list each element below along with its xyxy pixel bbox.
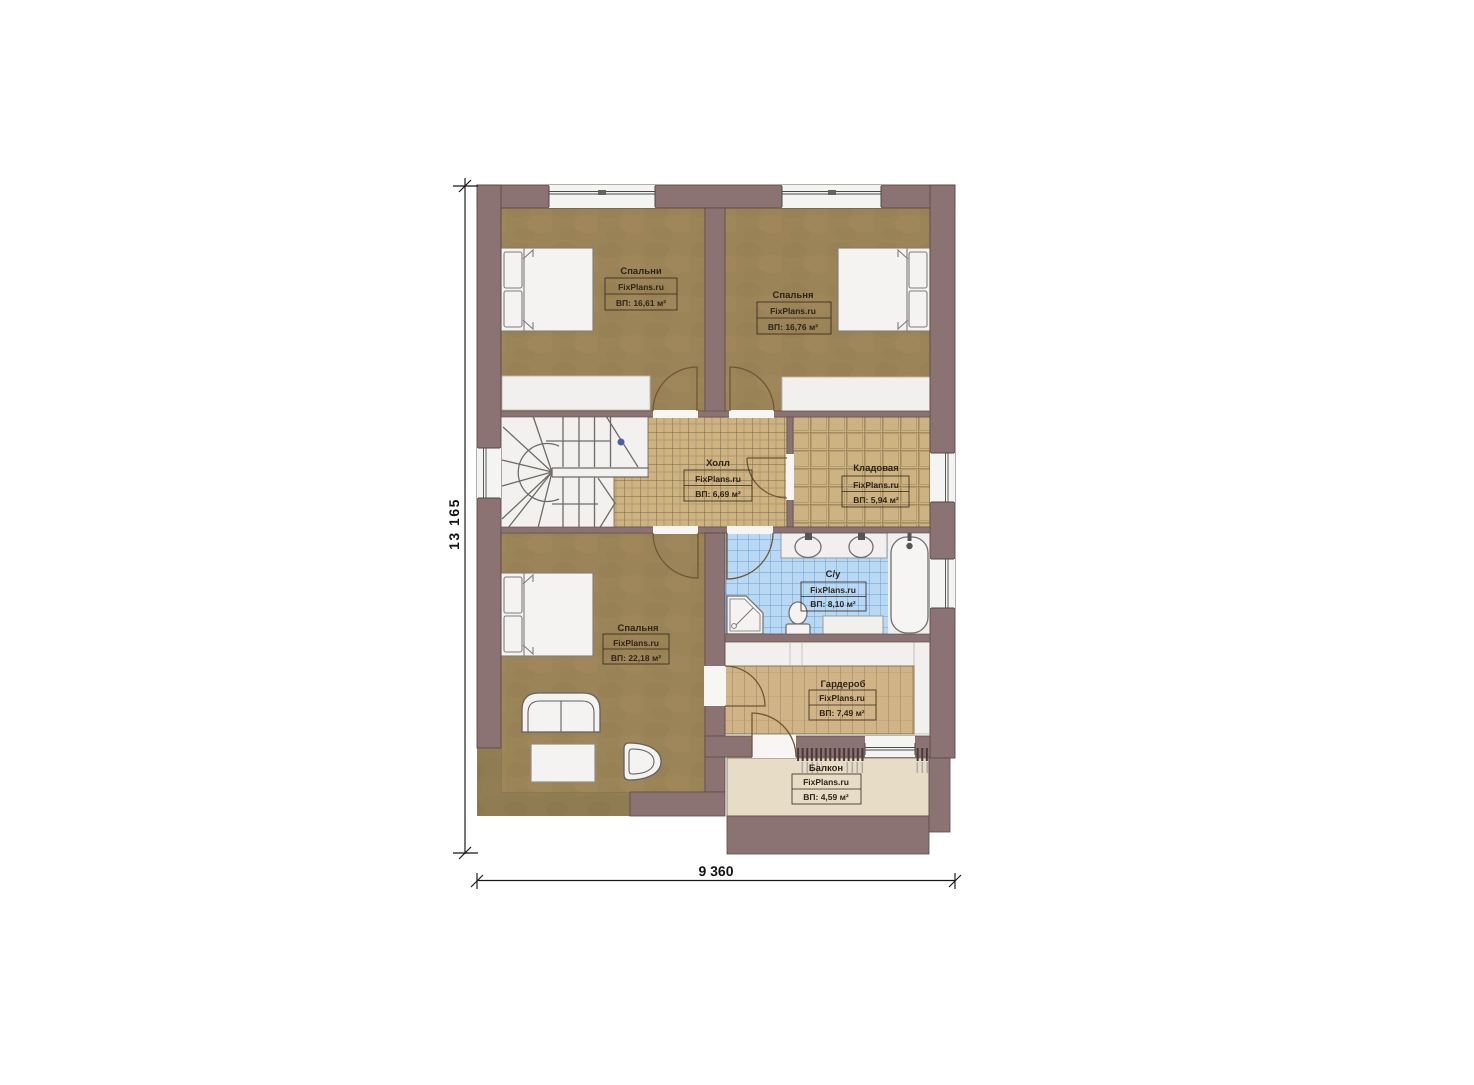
svg-text:Спальня: Спальня xyxy=(772,290,813,301)
svg-text:FixPlans.ru: FixPlans.ru xyxy=(819,693,865,703)
svg-text:ВП: 8,10 м²: ВП: 8,10 м² xyxy=(810,599,856,609)
svg-text:Спальня: Спальня xyxy=(617,623,658,634)
svg-text:Спальни: Спальни xyxy=(620,266,661,277)
svg-text:9 360: 9 360 xyxy=(698,863,733,879)
svg-text:FixPlans.ru: FixPlans.ru xyxy=(770,306,816,316)
svg-text:Балкон: Балкон xyxy=(809,763,844,774)
svg-text:ВП: 7,49 м²: ВП: 7,49 м² xyxy=(819,708,865,718)
svg-text:13 165: 13 165 xyxy=(446,498,462,550)
svg-text:ВП: 16,61 м²: ВП: 16,61 м² xyxy=(616,298,666,308)
svg-text:Кладовая: Кладовая xyxy=(853,463,899,474)
svg-text:ВП: 22,18 м²: ВП: 22,18 м² xyxy=(611,653,661,663)
svg-text:FixPlans.ru: FixPlans.ru xyxy=(695,474,741,484)
svg-text:ВП: 16,76 м²: ВП: 16,76 м² xyxy=(768,322,818,332)
svg-text:FixPlans.ru: FixPlans.ru xyxy=(803,777,849,787)
svg-text:FixPlans.ru: FixPlans.ru xyxy=(810,585,856,595)
svg-text:ВП: 4,59 м²: ВП: 4,59 м² xyxy=(803,792,849,802)
svg-text:С/у: С/у xyxy=(826,569,842,580)
svg-text:FixPlans.ru: FixPlans.ru xyxy=(618,282,664,292)
svg-text:ВП: 5,94 м²: ВП: 5,94 м² xyxy=(853,495,899,505)
svg-text:Гардероб: Гардероб xyxy=(821,679,866,690)
svg-text:Холл: Холл xyxy=(706,458,730,469)
svg-text:ВП: 6,69 м²: ВП: 6,69 м² xyxy=(695,489,741,499)
svg-text:FixPlans.ru: FixPlans.ru xyxy=(613,638,659,648)
svg-text:FixPlans.ru: FixPlans.ru xyxy=(853,480,899,490)
